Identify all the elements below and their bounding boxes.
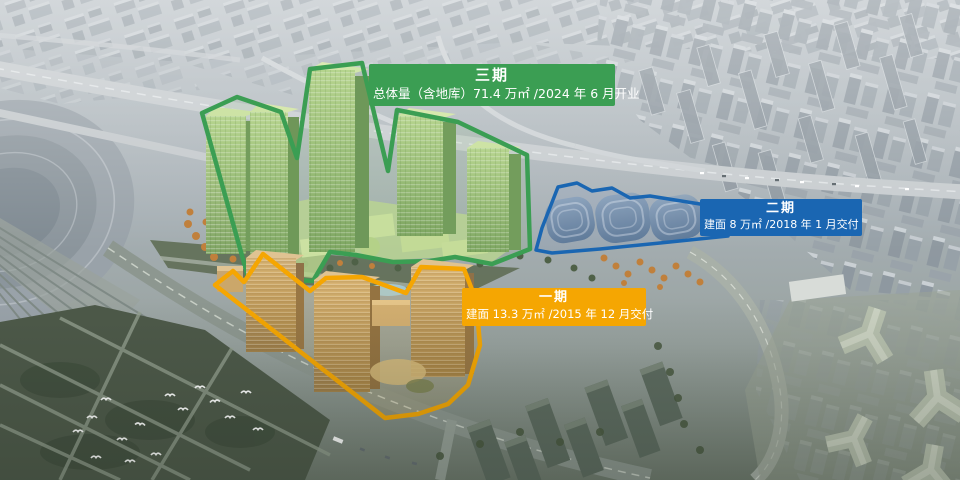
bottom-shading	[0, 300, 960, 480]
phase3-detail: 总体量（含地库）71.4 万㎡ /2024 年 6 月开业	[373, 86, 611, 102]
phase3-title: 三期	[373, 66, 611, 86]
project-phasing-aerial: 三期 总体量（含地库）71.4 万㎡ /2024 年 6 月开业 二期 建面 8…	[0, 0, 960, 480]
phase2-title: 二期	[704, 201, 858, 218]
phase1-label: 一期 建面 13.3 万㎡ /2015 年 12 月交付	[462, 288, 646, 326]
phase2-detail: 建面 8 万㎡ /2018 年 1 月交付	[704, 218, 858, 232]
phase2-label: 二期 建面 8 万㎡ /2018 年 1 月交付	[700, 199, 862, 236]
phase3-label: 三期 总体量（含地库）71.4 万㎡ /2024 年 6 月开业	[369, 64, 615, 106]
phase1-detail: 建面 13.3 万㎡ /2015 年 12 月交付	[466, 307, 642, 322]
phase1-title: 一期	[466, 290, 642, 307]
